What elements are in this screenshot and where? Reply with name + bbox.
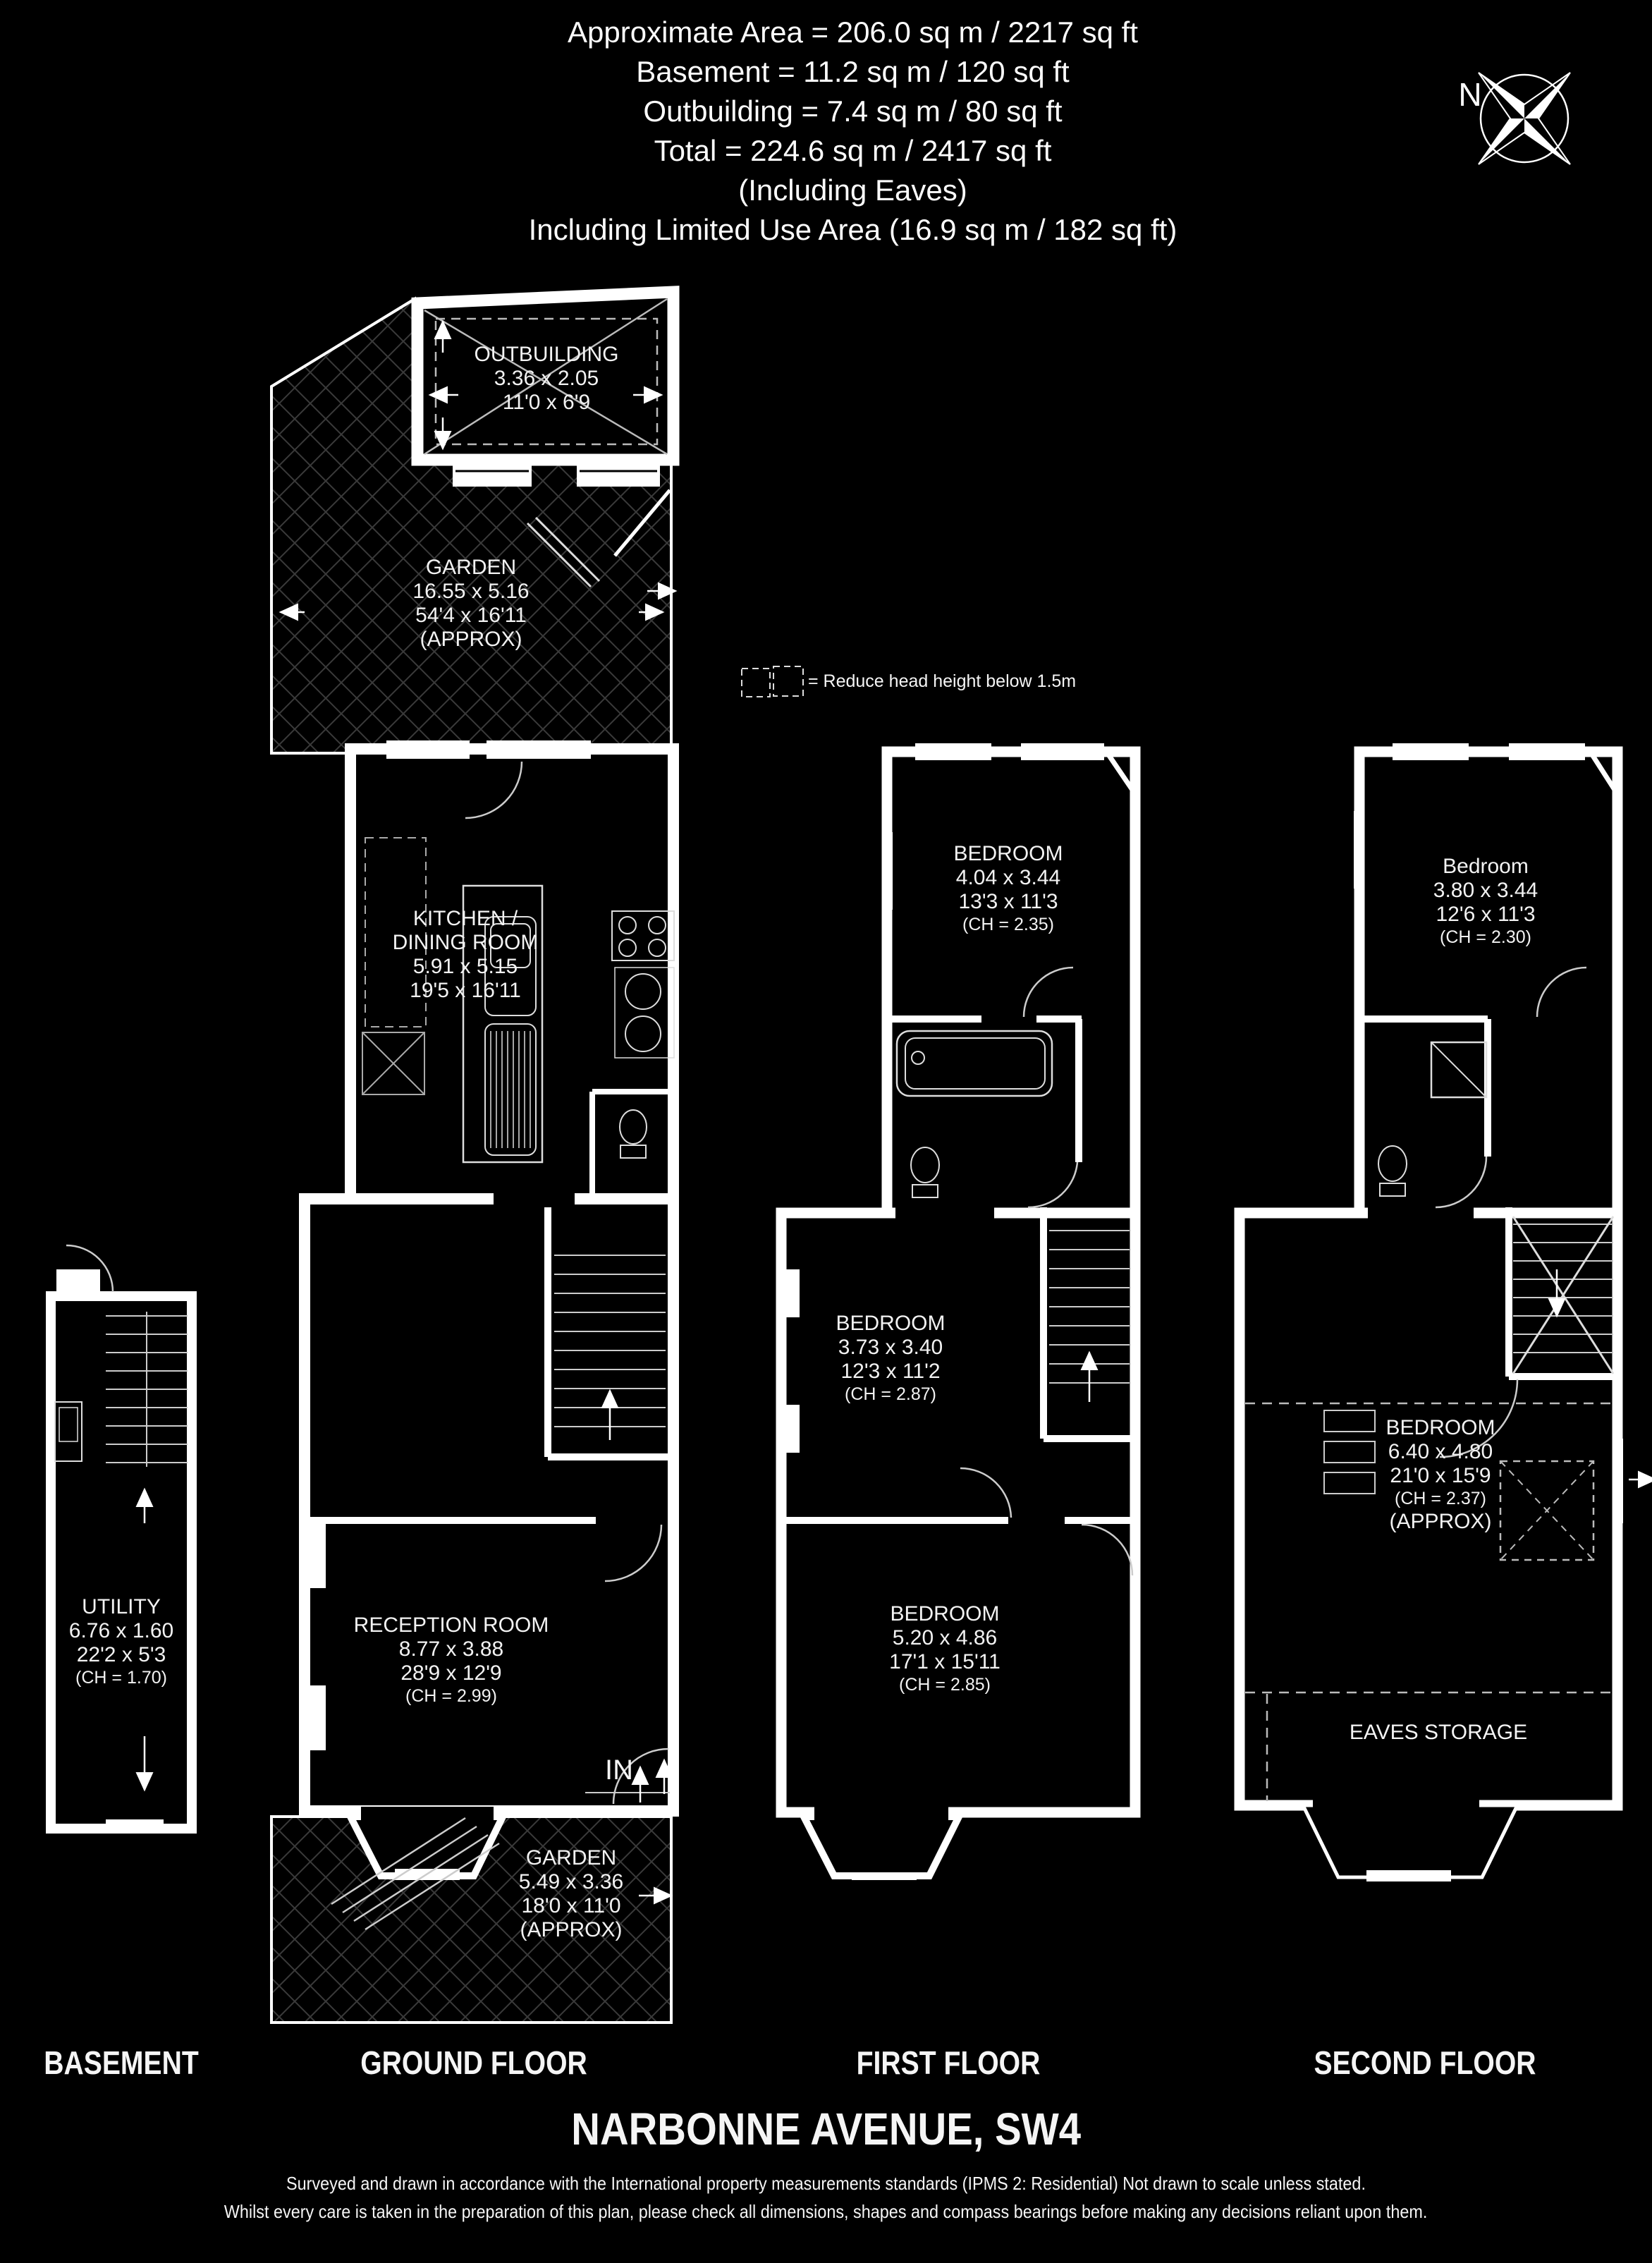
room-label-bedroom-sf-main: BEDROOM 6.40 x 4.80 21'0 x 15'9 (CH = 2.…	[1385, 1416, 1495, 1534]
floorplan-drawing: N	[0, 0, 1652, 2263]
basement-stairs	[106, 1312, 188, 1467]
room-label-garden-front: GARDEN 5.49 x 3.36 18'0 x 11'0 (APPROX)	[519, 1846, 623, 1942]
room-label-garden-rear: GARDEN 16.55 x 5.16 54'4 x 16'11 (APPROX…	[412, 556, 529, 652]
room-label-utility: UTILITY 6.76 x 1.60 22'2 x 5'3 (CH = 1.7…	[69, 1595, 173, 1689]
room-label-reception: RECEPTION ROOM 8.77 x 3.88 28'9 x 12'9 (…	[354, 1614, 549, 1707]
summary-line: (Including Eaves)	[27, 171, 1652, 210]
disclaimer-line: Surveyed and drawn in accordance with th…	[286, 2169, 1366, 2197]
area-summary: Approximate Area = 206.0 sq m / 2217 sq …	[27, 13, 1652, 250]
floorplan-page: N	[0, 0, 1652, 2263]
floor-label-second: SECOND FLOOR	[1295, 2044, 1556, 2082]
summary-line: Including Limited Use Area (16.9 sq m / …	[27, 210, 1652, 250]
room-label-bedroom-ff-middle: BEDROOM 3.73 x 3.40 12'3 x 11'2 (CH = 2.…	[836, 1312, 945, 1405]
room-label-kitchen: KITCHEN / DINING ROOM 5.91 x 5.15 19'5 x…	[393, 907, 539, 1003]
floor-label-ground: GROUND FLOOR	[341, 2044, 607, 2082]
legend-swatches	[742, 666, 803, 697]
disclaimer-line: Whilst every care is taken in the prepar…	[224, 2197, 1428, 2226]
disclaimer: Surveyed and drawn in accordance with th…	[0, 2169, 1652, 2226]
legend-label: = Reduce head height below 1.5m	[808, 671, 1076, 692]
room-label-bedroom-ff-rear: BEDROOM 4.04 x 3.44 13'3 x 11'3 (CH = 2.…	[953, 842, 1063, 936]
room-label-eaves-storage: EAVES STORAGE	[1350, 1721, 1527, 1745]
room-label-bedroom-sf-rear: Bedroom 3.80 x 3.44 12'6 x 11'3 (CH = 2.…	[1433, 855, 1538, 948]
entrance-in-label: IN	[605, 1755, 633, 1786]
page-title: NARBONNE AVENUE, SW4	[0, 2103, 1652, 2155]
summary-line: Total = 224.6 sq m / 2417 sq ft	[27, 131, 1652, 171]
room-label-bedroom-ff-front: BEDROOM 5.20 x 4.86 17'1 x 15'11 (CH = 2…	[889, 1602, 1001, 1696]
floor-label-basement: BASEMENT	[30, 2044, 212, 2082]
basement-plan	[51, 1245, 192, 1832]
summary-line: Outbuilding = 7.4 sq m / 80 sq ft	[27, 92, 1652, 131]
summary-line: Basement = 11.2 sq m / 120 sq ft	[27, 52, 1652, 92]
room-label-outbuilding: OUTBUILDING 3.36 x 2.05 11'0 x 6'9	[474, 343, 618, 415]
floor-label-first: FIRST FLOOR	[840, 2044, 1057, 2082]
summary-line: Approximate Area = 206.0 sq m / 2217 sq …	[27, 13, 1652, 52]
